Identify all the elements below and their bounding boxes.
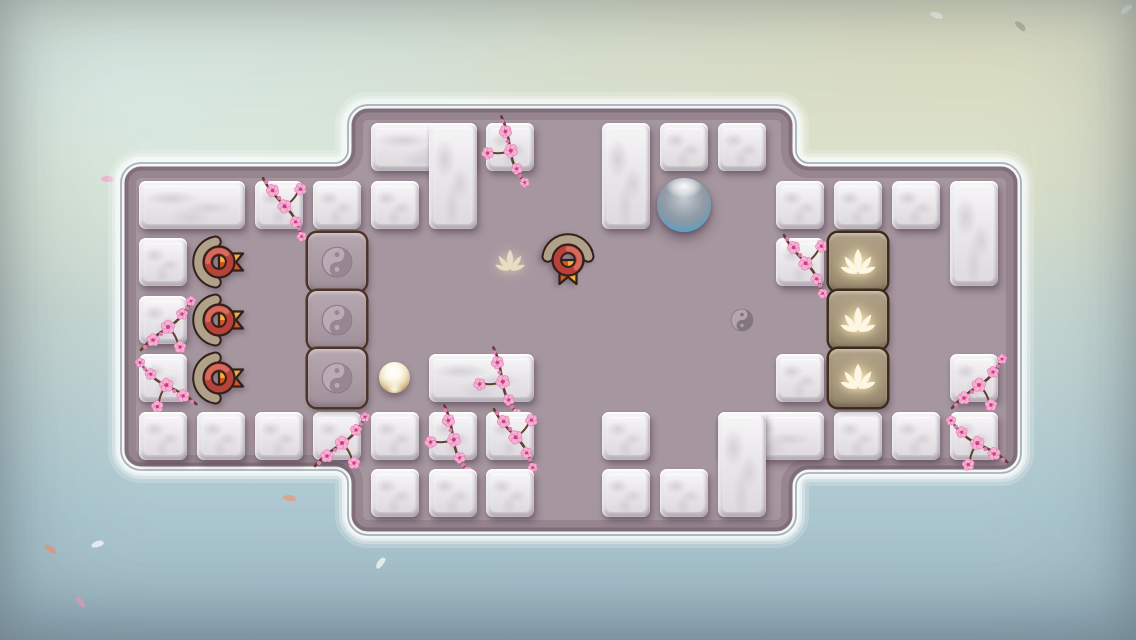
marble-block bbox=[486, 469, 534, 517]
marble-face bbox=[897, 186, 935, 224]
marble-face bbox=[144, 359, 182, 397]
marble-block bbox=[892, 412, 940, 460]
yinyang-icon bbox=[318, 301, 356, 339]
marble-block bbox=[950, 412, 998, 460]
marble-block bbox=[313, 181, 361, 229]
marble-face bbox=[955, 359, 993, 397]
yinyang-icon bbox=[318, 243, 356, 281]
marble-block bbox=[371, 469, 419, 517]
marble-block bbox=[950, 354, 998, 402]
rosette-goal-icon bbox=[538, 232, 598, 292]
marble-block bbox=[486, 412, 534, 460]
marble-face bbox=[781, 359, 819, 397]
yinyang-target-icon bbox=[728, 306, 756, 334]
board-items bbox=[0, 0, 1136, 640]
rosette-goal-marker bbox=[538, 232, 598, 292]
yinyang-tile bbox=[308, 291, 366, 349]
lotus-tile bbox=[829, 291, 887, 349]
marble-face bbox=[665, 474, 703, 512]
marble-face bbox=[607, 474, 645, 512]
marble-block bbox=[776, 238, 824, 286]
marble-face bbox=[376, 186, 414, 224]
marble-block bbox=[660, 469, 708, 517]
yinyang-tile bbox=[308, 349, 366, 407]
marble-face bbox=[434, 359, 530, 397]
marble-face bbox=[202, 417, 240, 455]
marble-face bbox=[144, 243, 182, 281]
rosette-goal-icon bbox=[191, 348, 251, 408]
yinyang-icon bbox=[318, 359, 356, 397]
rosette-goal-icon bbox=[191, 232, 251, 292]
lotus-target-icon bbox=[493, 247, 527, 275]
marble-face bbox=[491, 417, 529, 455]
marble-block bbox=[486, 123, 534, 171]
marble-block bbox=[602, 469, 650, 517]
marble-face bbox=[723, 128, 761, 166]
marble-block bbox=[313, 412, 361, 460]
marble-face bbox=[376, 417, 414, 455]
marble-face bbox=[260, 186, 298, 224]
marble-face bbox=[781, 243, 819, 281]
marble-block bbox=[371, 412, 419, 460]
marble-block bbox=[255, 412, 303, 460]
marble-face bbox=[897, 417, 935, 455]
marble-face bbox=[839, 186, 877, 224]
marble-block bbox=[429, 123, 477, 229]
marble-face bbox=[839, 417, 877, 455]
marble-block bbox=[718, 412, 766, 518]
rosette-goal-icon bbox=[191, 290, 251, 350]
lotus-icon bbox=[838, 361, 878, 394]
pearl-orb bbox=[379, 362, 410, 393]
marble-block bbox=[776, 181, 824, 229]
marble-face bbox=[144, 417, 182, 455]
marble-face bbox=[144, 186, 240, 224]
game-stage[interactable] bbox=[0, 0, 1136, 640]
marble-block bbox=[892, 181, 940, 229]
marble-block bbox=[429, 412, 477, 460]
marble-face bbox=[665, 128, 703, 166]
marble-block bbox=[718, 123, 766, 171]
lotus-tile bbox=[829, 233, 887, 291]
rosette-goal-marker bbox=[191, 348, 251, 408]
player-orb[interactable] bbox=[657, 178, 711, 232]
marble-block bbox=[371, 181, 419, 229]
marble-face bbox=[491, 474, 529, 512]
marble-face bbox=[318, 186, 356, 224]
marble-face bbox=[607, 128, 645, 224]
marble-face bbox=[434, 417, 472, 455]
marble-face bbox=[434, 128, 472, 224]
marble-block bbox=[660, 123, 708, 171]
marble-block bbox=[139, 296, 187, 344]
marble-face bbox=[491, 128, 529, 166]
marble-block bbox=[834, 181, 882, 229]
marble-block bbox=[255, 181, 303, 229]
marble-face bbox=[607, 417, 645, 455]
marble-block bbox=[139, 238, 187, 286]
marble-block bbox=[950, 181, 998, 287]
yinyang-target-marker bbox=[728, 306, 756, 334]
marble-face bbox=[260, 417, 298, 455]
marble-face bbox=[955, 417, 993, 455]
marble-block bbox=[834, 412, 882, 460]
yinyang-tile bbox=[308, 233, 366, 291]
marble-block bbox=[602, 123, 650, 229]
marble-block bbox=[429, 469, 477, 517]
marble-block bbox=[139, 412, 187, 460]
marble-face bbox=[723, 417, 761, 513]
lotus-icon bbox=[838, 304, 878, 337]
rosette-goal-marker bbox=[191, 232, 251, 292]
marble-face bbox=[434, 474, 472, 512]
rosette-goal-marker bbox=[191, 290, 251, 350]
marble-block bbox=[197, 412, 245, 460]
marble-block bbox=[429, 354, 535, 402]
marble-face bbox=[955, 186, 993, 282]
lotus-tile bbox=[829, 349, 887, 407]
marble-block bbox=[776, 354, 824, 402]
lotus-icon bbox=[838, 246, 878, 279]
marble-face bbox=[318, 417, 356, 455]
marble-face bbox=[144, 301, 182, 339]
marble-block bbox=[602, 412, 650, 460]
marble-face bbox=[376, 474, 414, 512]
marble-block bbox=[139, 181, 245, 229]
marble-face bbox=[781, 186, 819, 224]
lotus-target-marker bbox=[493, 247, 527, 275]
marble-block bbox=[139, 354, 187, 402]
